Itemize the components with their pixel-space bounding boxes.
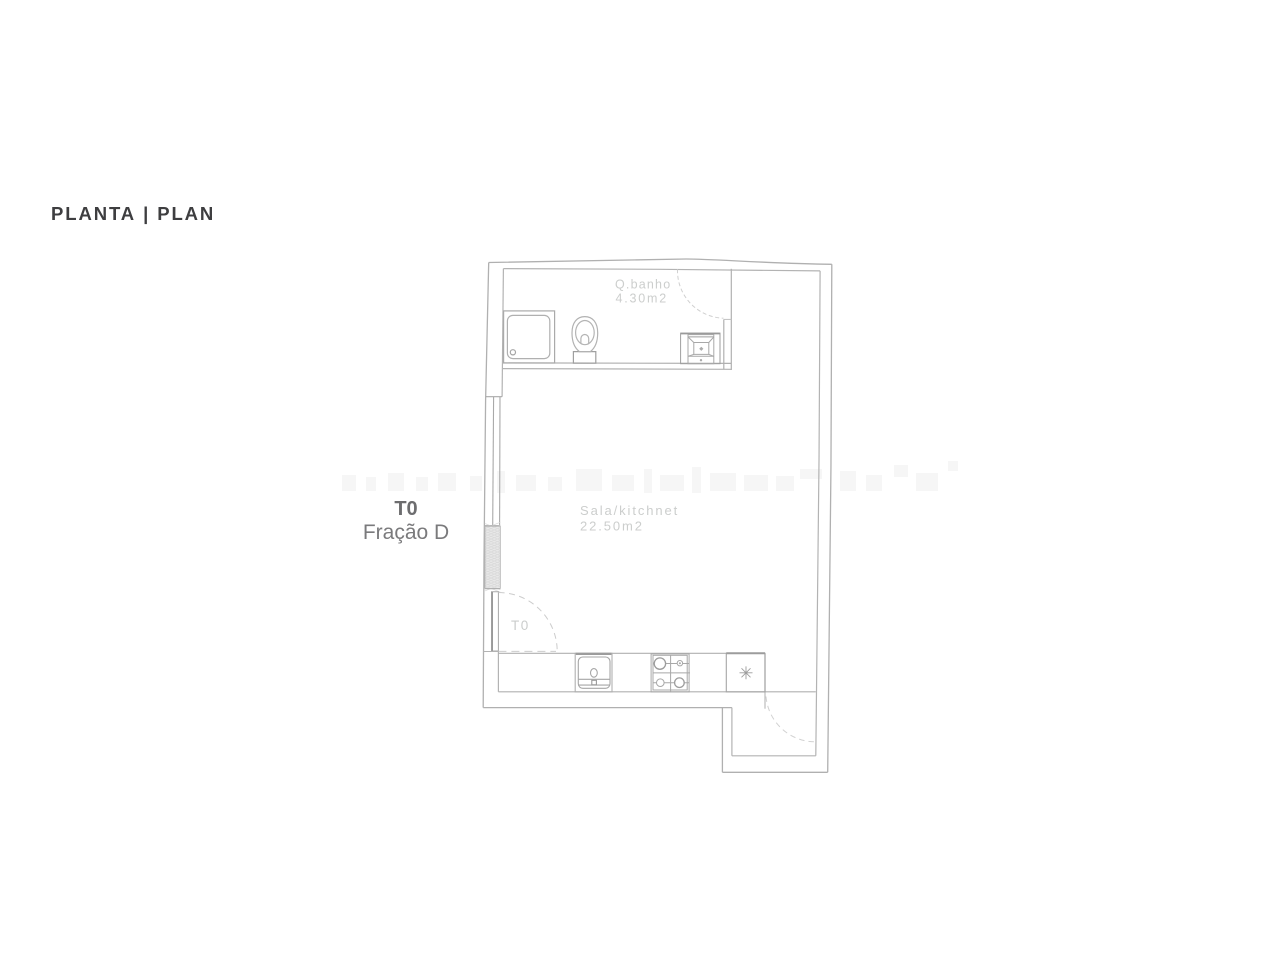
svg-text:22.50m2: 22.50m2 bbox=[580, 518, 644, 533]
svg-text:Sala/kitchnet: Sala/kitchnet bbox=[580, 503, 679, 518]
svg-text:T0: T0 bbox=[511, 618, 530, 633]
svg-text:4.30m2: 4.30m2 bbox=[616, 292, 669, 306]
svg-text:Q.banho: Q.banho bbox=[615, 277, 671, 291]
